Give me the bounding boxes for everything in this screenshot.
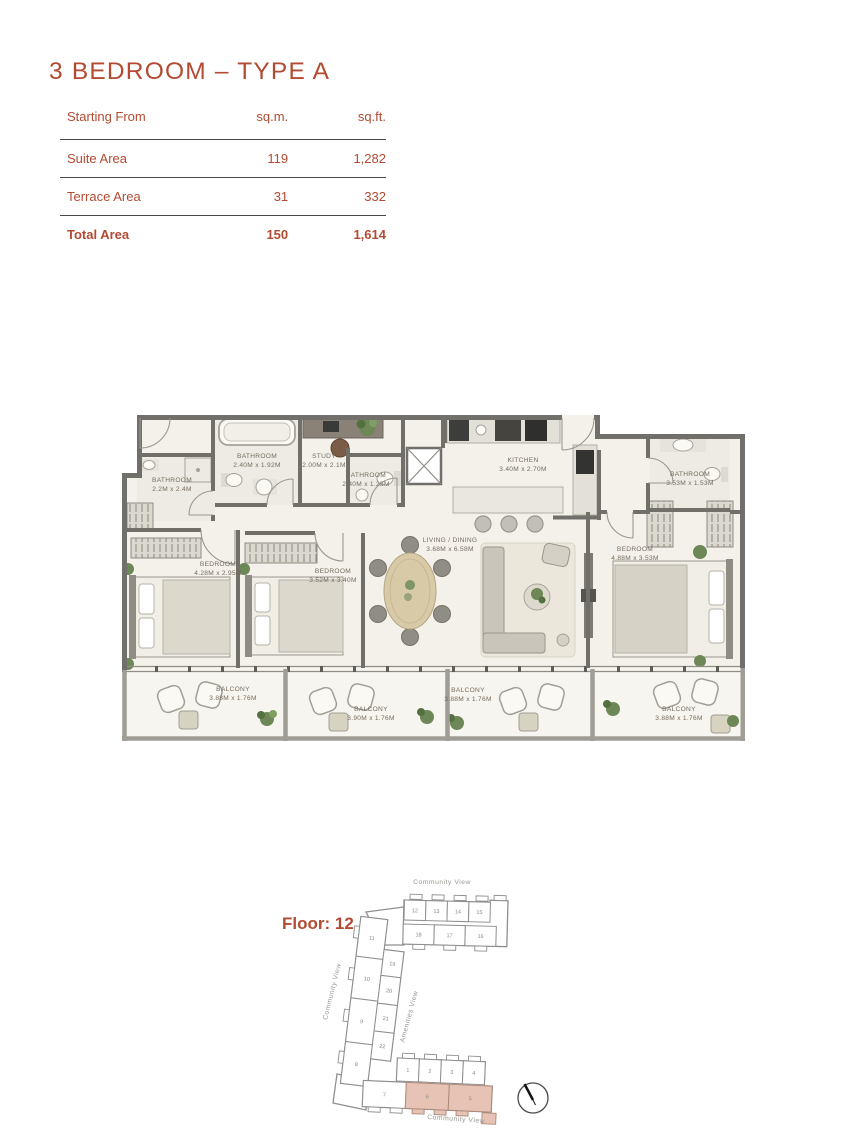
site-unit-number: 10 [363,976,370,983]
site-unit-number: 11 [369,936,375,943]
site-unit-number: 15 [476,910,482,916]
floor-plan: BATHROOM2.2M x 2.4MBATHROOM2.40M x 1.92M… [115,403,748,758]
row-sqm-value: 31 [229,178,288,216]
table-header-row: Starting From sq.m. sq.ft. [60,99,386,140]
site-plan: Floor: 12 12131415181716 11109819202122 … [280,870,590,1132]
site-unit-number: 20 [386,988,393,995]
row-label: Terrace Area [60,178,229,216]
site-unit-number: 22 [379,1044,386,1051]
building-wing-top: 12131415181716 [403,893,508,952]
row-label: Total Area [60,216,229,254]
site-unit-number: 13 [433,909,439,915]
area-table: Starting From sq.m. sq.ft. Suite Area119… [60,99,386,253]
page-title: 3 BEDROOM – TYPE A [49,58,330,86]
bed [613,545,733,667]
site-unit-number: 12 [412,908,418,914]
site-unit-number: 5 [469,1096,472,1102]
site-unit-number: 2 [428,1069,431,1075]
table-row: Total Area1501,614 [60,216,386,254]
compass-icon [518,1083,548,1113]
site-unit-number: 3 [450,1070,453,1076]
site-unit-number: 16 [477,934,483,940]
col-header-sqft: sq.ft. [288,99,386,140]
site-unit-number: 18 [415,932,421,938]
row-sqft-value: 1,614 [288,216,386,254]
row-label: Suite Area [60,140,229,178]
wardrobe [131,538,201,558]
sofa-area [481,543,575,657]
site-unit-number: 7 [383,1092,386,1098]
brochure-page: { "page": { "title": "3 BEDROOM – TYPE A… [0,0,856,1142]
table-row: Suite Area1191,282 [60,140,386,178]
site-unit-number: 14 [455,909,461,915]
bed [238,563,343,657]
site-plan-drawing: 12131415181716 11109819202122 1234765 Co… [280,870,590,1132]
kitchen-island [453,487,563,513]
view-label-left: Community View [322,963,343,1021]
floor-number-label: Floor: 12 [282,914,354,934]
table-row: Terrace Area31332 [60,178,386,216]
col-header-sqm: sq.m. [229,99,288,140]
row-sqft-value: 332 [288,178,386,216]
site-unit-number: 19 [389,961,396,968]
site-unit-number: 1 [406,1068,409,1074]
bed [122,563,230,670]
row-sqm-value: 119 [229,140,288,178]
site-unit-number: 17 [446,933,452,939]
area-table-body: Suite Area1191,282Terrace Area31332Total… [60,140,386,254]
view-label-top: Community View [413,879,471,886]
floor-plan-drawing [115,403,748,758]
site-unit-number: 6 [426,1094,429,1100]
site-unit-number: 21 [382,1016,389,1023]
row-sqft-value: 1,282 [288,140,386,178]
view-label-amenities: Amenities View [399,990,420,1043]
row-sqm-value: 150 [229,216,288,254]
col-header-starting-from: Starting From [60,99,229,140]
view-label-bottom: Community View [427,1114,485,1125]
site-unit-number: 4 [472,1071,475,1077]
